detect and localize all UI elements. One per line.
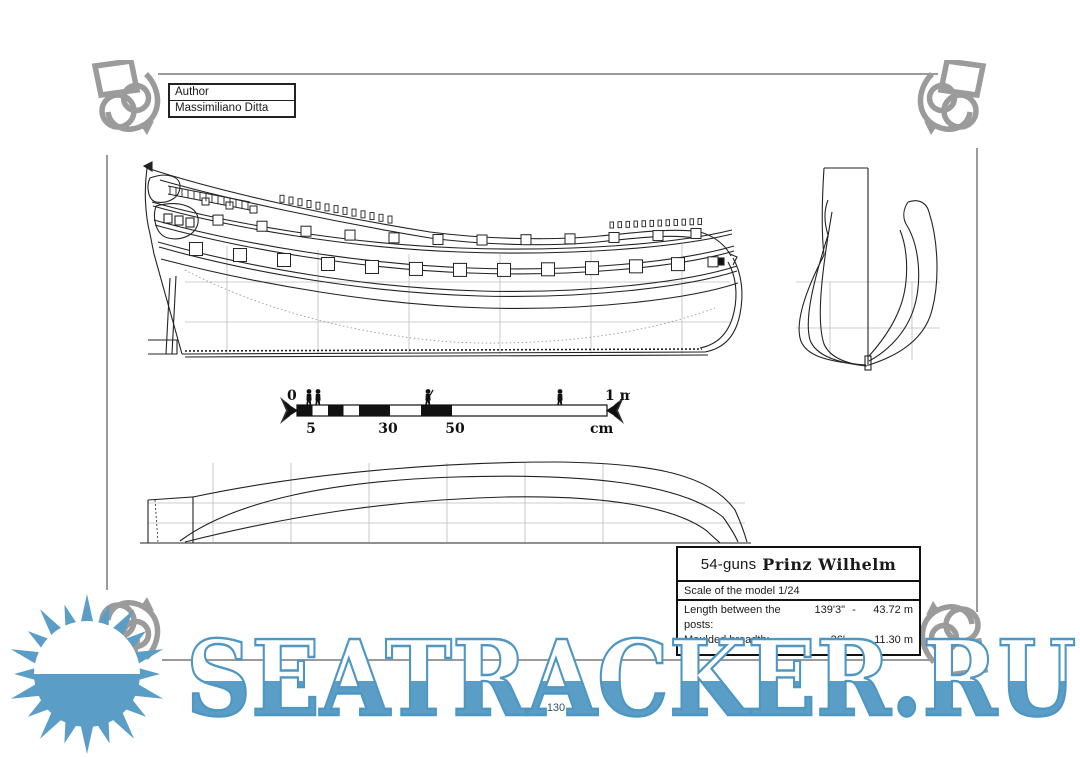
dim-imperial: 36'	[799, 633, 845, 648]
author-box: Author Massimiliano Ditta	[168, 83, 296, 118]
dim-label: Length between the posts:	[684, 603, 799, 633]
frame-right-line	[976, 148, 978, 612]
gun-count: 54-guns	[701, 556, 757, 573]
half-breadth-plan-drawing	[135, 455, 755, 547]
scale-unit-label: cm	[590, 421, 614, 437]
dimension-row-length: Length between the posts: 139'3" - 43.72…	[684, 603, 913, 633]
page-number: 130	[540, 702, 572, 714]
frame-bottom-line	[162, 659, 930, 661]
corner-ornament-bottom-right-icon	[915, 592, 995, 676]
scale-start-label: 0	[287, 388, 297, 404]
scale-end-label: 1 m	[605, 388, 630, 404]
corner-ornament-bottom-left-icon	[85, 588, 165, 672]
author-name: Massimiliano Ditta	[170, 101, 294, 116]
ship-name: Prinz Wilhelm	[762, 555, 896, 574]
dim-separator: -	[845, 633, 863, 648]
dim-imperial: 139'3"	[799, 603, 845, 633]
plan-sheet: Author Massimiliano Ditta	[0, 0, 1080, 757]
frame-top-line	[158, 73, 938, 75]
scale-note: Scale of the model 1/24	[678, 582, 919, 601]
sheer-plan-drawing	[130, 158, 750, 368]
dim-metric: 11.30 m	[863, 633, 913, 648]
author-label: Author	[170, 85, 294, 101]
scale-tick-50: 50	[445, 421, 465, 437]
scale-tick-5: 5	[306, 421, 316, 437]
dim-label: Moulded breadth:	[684, 633, 799, 648]
dimension-row-breadth: Moulded breadth: 36' - 11.30 m	[684, 633, 913, 648]
scale-figure-icons	[306, 389, 562, 405]
scale-bar: 0 1 m 5 30 50 cm	[278, 386, 630, 438]
body-plan-drawing	[788, 160, 948, 372]
scale-tick-30: 30	[378, 421, 398, 437]
frame-left-line	[106, 155, 108, 590]
corner-ornament-top-left-icon	[85, 60, 165, 144]
dim-metric: 43.72 m	[863, 603, 913, 633]
dim-separator: -	[845, 603, 863, 633]
corner-ornament-top-right-icon	[913, 60, 993, 144]
title-box: 54-guns Prinz Wilhelm Scale of the model…	[676, 546, 921, 656]
